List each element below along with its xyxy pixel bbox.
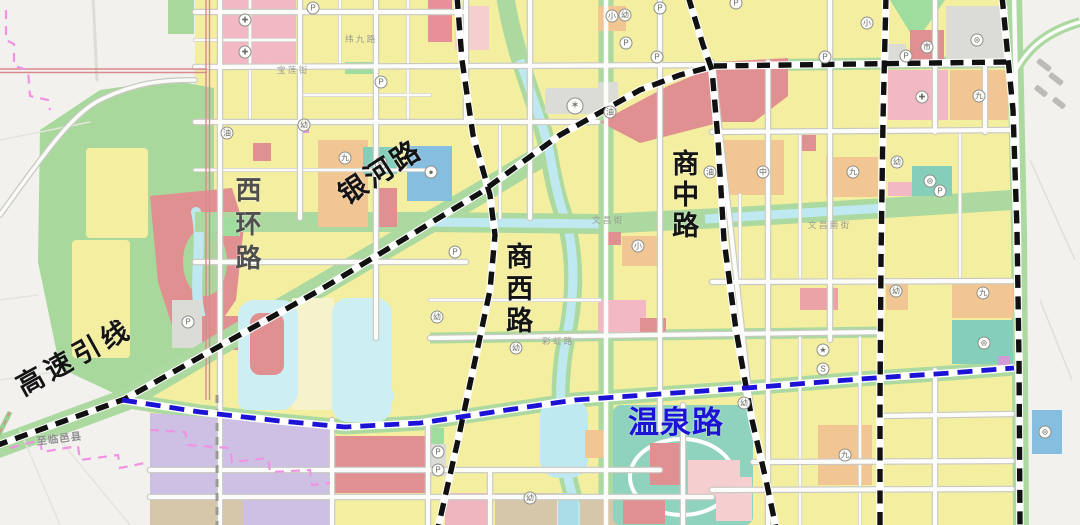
- kindergarten-icon: 幼: [524, 492, 537, 505]
- kindergarten-icon: 幼: [890, 285, 903, 298]
- dot-facility-icon: ●: [425, 166, 438, 179]
- parking-icon: P: [819, 51, 832, 64]
- kindergarten-icon: 幼: [431, 311, 444, 324]
- shangzhong-road-label: 商中路: [669, 149, 697, 242]
- xihuan-road-label: 西环路: [233, 176, 260, 278]
- parking-icon: P: [432, 446, 445, 459]
- parking-icon: P: [654, 2, 667, 15]
- parking-icon: P: [182, 316, 195, 329]
- primary-school-icon: 小: [861, 17, 874, 30]
- basemap-svg: [0, 0, 1080, 525]
- map-canvas: PPPPPPPPPPPPP幼幼幼幼幼幼幼幼小小小中九九九九九⊜⊜⊜⊜⊜✚✚✚市✶…: [0, 0, 1080, 525]
- street-name-label: 文 昌 街: [592, 214, 622, 226]
- kindergarten-icon: 幼: [738, 397, 751, 410]
- nine-year-school-icon: 九: [847, 166, 860, 179]
- hospital-icon: ✚: [239, 46, 252, 59]
- s-facility-icon: S: [817, 363, 830, 376]
- facility-icon: ⊜: [971, 34, 984, 47]
- primary-school-icon: 小: [606, 10, 619, 23]
- hospital-icon: ✚: [239, 14, 252, 27]
- kindergarten-icon: 幼: [510, 342, 523, 355]
- auto-dealer-icon: ✶: [567, 98, 584, 115]
- middle-school-icon: 中: [757, 166, 770, 179]
- facility-icon: ⊜: [924, 175, 937, 188]
- nine-year-school-icon: 九: [973, 90, 986, 103]
- market-icon: 市: [921, 41, 934, 54]
- nine-year-school-icon: 九: [977, 287, 990, 300]
- wenquan-road-label: 温泉路: [628, 407, 724, 439]
- kindergarten-icon: 幼: [298, 119, 311, 132]
- street-name-label: 宝 莲 街: [277, 64, 307, 76]
- street-name-label: 彩 虹 路: [542, 335, 572, 347]
- parking-icon: P: [651, 51, 664, 64]
- primary-school-icon: 小: [632, 240, 645, 253]
- kindergarten-icon: 幼: [619, 9, 632, 22]
- parking-icon: P: [620, 37, 633, 50]
- shangxi-road-label: 商西路: [503, 242, 531, 338]
- star-facility-icon: ★: [817, 344, 830, 357]
- gas-station-icon: 油: [221, 127, 234, 140]
- parking-icon: P: [900, 50, 913, 63]
- parking-icon: P: [375, 76, 388, 89]
- hospital-icon: ✚: [916, 91, 929, 104]
- facility-icon: ⊜: [978, 337, 991, 350]
- street-name-label: 文 昌 南 街: [808, 219, 849, 231]
- gas-station-icon: 油: [604, 106, 617, 119]
- kindergarten-icon: 幼: [891, 156, 904, 169]
- street-name-label: 纬 九 路: [345, 33, 375, 45]
- parking-icon: P: [934, 185, 947, 198]
- nine-year-school-icon: 九: [339, 152, 352, 165]
- parking-icon: P: [307, 2, 320, 15]
- parking-icon: P: [432, 464, 445, 477]
- parking-icon: P: [449, 246, 462, 259]
- facility-icon: ⊜: [1039, 426, 1052, 439]
- nine-year-school-icon: 九: [839, 449, 852, 462]
- gas-station-icon: 油: [704, 166, 717, 179]
